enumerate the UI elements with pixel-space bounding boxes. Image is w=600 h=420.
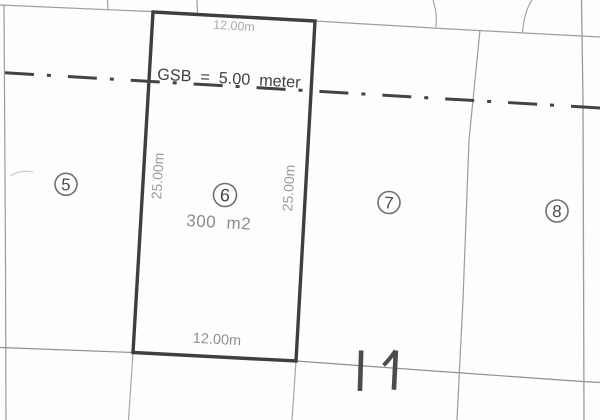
svg-text:GSB = 5.00 meter: GSB = 5.00 meter (157, 66, 302, 92)
svg-text:5: 5 (61, 175, 72, 195)
svg-text:6: 6 (219, 185, 230, 206)
svg-text:12.00m: 12.00m (213, 18, 255, 34)
svg-text:7: 7 (384, 193, 395, 213)
svg-text:25.00m: 25.00m (148, 152, 167, 200)
svg-text:12.00m: 12.00m (192, 331, 241, 350)
svg-text:8: 8 (552, 202, 563, 222)
svg-text:300 m2: 300 m2 (186, 211, 252, 234)
svg-text:25.00m: 25.00m (279, 164, 298, 212)
